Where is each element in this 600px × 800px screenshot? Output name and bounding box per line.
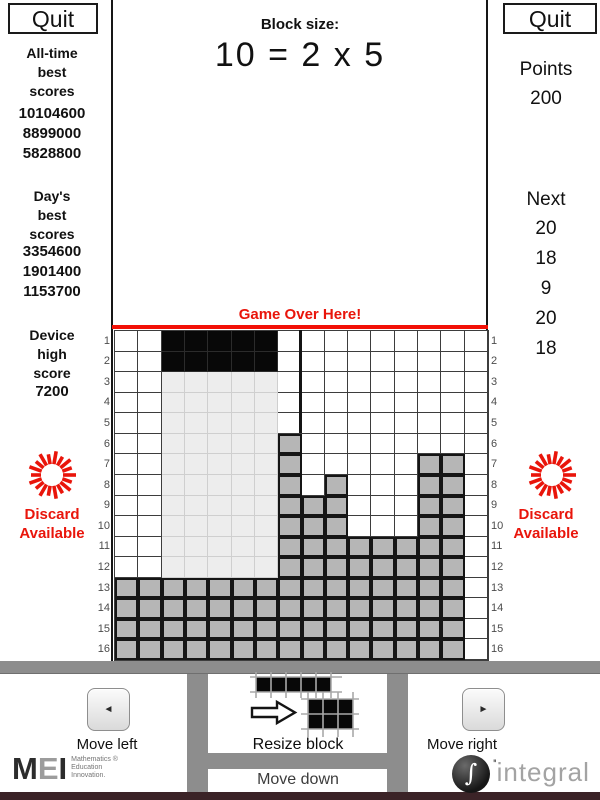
available-word: Available	[0, 524, 104, 543]
grid-cell	[185, 352, 208, 373]
grid-cell	[325, 475, 348, 496]
control-divider-right	[387, 674, 408, 793]
grid-cell	[302, 434, 325, 455]
grid-cell	[441, 372, 464, 393]
all-time-score-3: 5828800	[0, 144, 104, 164]
grid-cell	[232, 413, 255, 434]
all-time-score-2: 8899000	[0, 124, 104, 144]
grid-cell	[348, 372, 371, 393]
grid-cell	[348, 434, 371, 455]
grid-cell	[395, 496, 418, 517]
grid-cell	[465, 516, 488, 537]
day-score-1: 3354600	[0, 242, 104, 262]
grid-cell	[278, 598, 301, 619]
grid-cell	[162, 516, 185, 537]
grid-cell	[302, 475, 325, 496]
row-number-left: 13	[88, 581, 110, 595]
left-triangle-icon: ◄	[104, 704, 114, 715]
grid-cell	[325, 619, 348, 640]
grid-cell	[302, 537, 325, 558]
day-line1: Day's	[0, 187, 104, 206]
grid-cell	[278, 372, 301, 393]
grid-cell	[232, 475, 255, 496]
grid-cell	[138, 352, 161, 373]
next-label: Next	[492, 185, 600, 214]
grid-cell	[162, 578, 185, 599]
resize-block-label[interactable]: Resize block	[208, 736, 388, 754]
grid-cell	[348, 331, 371, 352]
grid-cell	[395, 516, 418, 537]
grid-cell	[465, 537, 488, 558]
integral-sphere-icon: ∫	[452, 755, 490, 793]
grid-cell	[325, 598, 348, 619]
grid-cell	[325, 372, 348, 393]
grid-cell	[348, 598, 371, 619]
grid-cell	[441, 434, 464, 455]
grid-cell	[348, 516, 371, 537]
grid-cell	[255, 496, 278, 517]
row-number-right: 6	[491, 437, 515, 451]
factris-game-screen: Quit All-time best scores 10104600 88990…	[0, 0, 600, 800]
grid-cell	[465, 639, 488, 660]
grid-cell	[232, 619, 255, 640]
grid-cell	[302, 413, 325, 434]
grid-cell	[302, 578, 325, 599]
grid-cell	[278, 434, 301, 455]
device-line2: high	[0, 345, 104, 364]
grid-cell	[278, 496, 301, 517]
starburst-icon[interactable]	[524, 447, 580, 503]
grid-cell	[162, 352, 185, 373]
grid-cell	[138, 475, 161, 496]
grid-cell	[302, 331, 325, 352]
day-best-header: Day's best scores	[0, 187, 104, 244]
grid-cell	[208, 331, 231, 352]
grid-cell	[302, 454, 325, 475]
row-number-left: 15	[88, 622, 110, 636]
grid-cell	[115, 537, 138, 558]
grid-cell	[138, 454, 161, 475]
grid-cell	[185, 516, 208, 537]
grid-cell	[138, 516, 161, 537]
grid-cell	[418, 496, 441, 517]
quit-button-right[interactable]: Quit	[503, 3, 597, 34]
grid-cell	[255, 454, 278, 475]
grid-cell	[232, 578, 255, 599]
row-number-left: 5	[88, 416, 110, 430]
grid-cell	[232, 372, 255, 393]
grid-cell	[162, 331, 185, 352]
grid-cell	[418, 454, 441, 475]
grid-cell	[162, 475, 185, 496]
grid-cell	[371, 639, 394, 660]
grid-cell	[255, 578, 278, 599]
grid-cell	[441, 639, 464, 660]
grid-cell	[371, 393, 394, 414]
grid-cell	[138, 557, 161, 578]
grid-cell	[371, 557, 394, 578]
grid-cell	[395, 475, 418, 496]
grid-cell	[232, 598, 255, 619]
grid-cell	[441, 413, 464, 434]
next-value-5: 18	[492, 334, 600, 363]
grid-cell	[395, 578, 418, 599]
right-triangle-icon: ►	[479, 704, 489, 715]
grid-cell	[371, 496, 394, 517]
discard-word: Discard	[0, 505, 104, 524]
mei-tagline-1: Mathematics ®	[71, 756, 118, 764]
integral-prefix: ''	[493, 757, 496, 771]
grid-cell	[348, 639, 371, 660]
row-number-left: 7	[88, 457, 110, 471]
grid-cell	[162, 619, 185, 640]
row-number-right: 12	[491, 560, 515, 574]
game-over-label: Game Over Here!	[113, 306, 487, 323]
grid-cell	[185, 619, 208, 640]
grid-cell	[302, 352, 325, 373]
grid-cell	[185, 454, 208, 475]
grid-cell	[325, 496, 348, 517]
row-number-right: 5	[491, 416, 515, 430]
grid-cell	[325, 393, 348, 414]
grid-cell	[208, 537, 231, 558]
grid-cell	[138, 413, 161, 434]
grid-cell	[208, 516, 231, 537]
mei-letter-e: E	[38, 751, 59, 786]
grid-cell	[302, 372, 325, 393]
grid-cell	[441, 352, 464, 373]
grid-cell	[395, 372, 418, 393]
next-value-3: 9	[492, 274, 600, 303]
grid-cell	[278, 639, 301, 660]
grid-cell	[371, 619, 394, 640]
grid-cell	[441, 393, 464, 414]
grid-cell	[185, 393, 208, 414]
grid-cell	[138, 331, 161, 352]
grid-cell	[465, 454, 488, 475]
mei-letter-m: M	[12, 751, 38, 786]
grid-cell	[278, 475, 301, 496]
game-over-line	[112, 325, 488, 329]
mei-logo: MEI Mathematics ® Education Innovation.	[12, 753, 118, 784]
grid-cell	[115, 454, 138, 475]
grid-cell	[465, 413, 488, 434]
grid-cell	[441, 598, 464, 619]
row-number-right: 4	[491, 395, 515, 409]
grid-cell	[418, 619, 441, 640]
grid-cell	[395, 537, 418, 558]
grid-cell	[465, 598, 488, 619]
day-line2: best	[0, 206, 104, 225]
grid-cell	[348, 619, 371, 640]
grid-cell	[138, 393, 161, 414]
grid-cell	[441, 578, 464, 599]
grid-cell	[325, 578, 348, 599]
quit-button-left[interactable]: Quit	[8, 3, 98, 34]
grid-cell	[232, 393, 255, 414]
grid-cell	[371, 475, 394, 496]
grid-cell	[441, 557, 464, 578]
grid-cell	[371, 331, 394, 352]
row-number-right: 7	[491, 457, 515, 471]
grid-cell	[418, 434, 441, 455]
grid-cell	[185, 578, 208, 599]
grid-cell	[325, 557, 348, 578]
grid-cell	[395, 639, 418, 660]
grid-cell	[162, 434, 185, 455]
grid-cell	[162, 537, 185, 558]
grid-cell	[115, 578, 138, 599]
resize-result-block-icon[interactable]	[301, 692, 359, 738]
all-time-line1: All-time	[0, 44, 104, 63]
next-value-4: 20	[492, 304, 600, 333]
all-time-best-header: All-time best scores	[0, 44, 104, 101]
grid-cell	[325, 454, 348, 475]
device-line1: Device	[0, 326, 104, 345]
grid-cell	[208, 393, 231, 414]
grid-cell	[302, 557, 325, 578]
grid-cell	[441, 496, 464, 517]
grid-cell	[465, 372, 488, 393]
grid-cell	[302, 598, 325, 619]
grid-cell	[278, 331, 301, 352]
grid-cell	[441, 454, 464, 475]
grid-cell	[325, 639, 348, 660]
grid-cell	[208, 639, 231, 660]
grid-cell	[465, 393, 488, 414]
all-time-line3: scores	[0, 82, 104, 101]
row-number-right: 16	[491, 642, 515, 656]
grid-cell	[395, 598, 418, 619]
row-number-left: 16	[88, 642, 110, 656]
grid-cell	[138, 434, 161, 455]
all-time-scores: 10104600 8899000 5828800	[0, 104, 104, 164]
grid-cell	[325, 537, 348, 558]
grid-cell	[255, 393, 278, 414]
day-score-3: 1153700	[0, 282, 104, 302]
grid-cell	[348, 352, 371, 373]
grid-cell	[208, 352, 231, 373]
grid-cell	[255, 413, 278, 434]
mei-tagline: Mathematics ® Education Innovation.	[71, 756, 118, 780]
next-value-2: 18	[492, 244, 600, 273]
grid-cell	[302, 393, 325, 414]
all-time-line2: best	[0, 63, 104, 82]
grid-cell	[162, 413, 185, 434]
grid-cell	[115, 557, 138, 578]
grid-cell	[325, 516, 348, 537]
grid-cell	[278, 557, 301, 578]
grid-cell	[302, 619, 325, 640]
grid-cell	[255, 516, 278, 537]
day-score-2: 1901400	[0, 262, 104, 282]
row-number-left: 14	[88, 601, 110, 615]
grid-cell	[395, 352, 418, 373]
grid-cell	[325, 352, 348, 373]
grid-cell	[115, 393, 138, 414]
grid-cell	[371, 413, 394, 434]
grid-cell	[441, 619, 464, 640]
grid-cell	[115, 434, 138, 455]
drop-guide-line	[299, 330, 302, 433]
grid-cell	[418, 639, 441, 660]
grid-cell	[208, 619, 231, 640]
grid-cell	[395, 393, 418, 414]
grid-cell	[232, 639, 255, 660]
device-high-score-header: Device high score	[0, 326, 104, 383]
move-left-button[interactable]: ◄	[87, 688, 130, 731]
grid-cell	[185, 496, 208, 517]
grid-cell	[185, 434, 208, 455]
grid-cell	[138, 639, 161, 660]
control-divider-middle	[187, 753, 408, 769]
grid-cell	[115, 475, 138, 496]
integral-logo: ∫ '' integral	[452, 755, 590, 793]
grid-cell	[465, 578, 488, 599]
block-resize-arrow-icon[interactable]	[249, 699, 299, 726]
move-right-label: Move right	[402, 736, 522, 753]
grid-cell	[371, 434, 394, 455]
row-number-left: 8	[88, 478, 110, 492]
move-right-button[interactable]: ►	[462, 688, 505, 731]
grid-cell	[208, 578, 231, 599]
grid-cell	[418, 557, 441, 578]
grid-cell	[232, 537, 255, 558]
grid-cell	[418, 372, 441, 393]
grid-cell	[278, 619, 301, 640]
grid-cell	[418, 413, 441, 434]
grid-cell	[348, 537, 371, 558]
grid-cell	[418, 598, 441, 619]
grid-cell	[208, 598, 231, 619]
grid-cell	[418, 475, 441, 496]
grid-cell	[115, 496, 138, 517]
grid-cell	[465, 331, 488, 352]
grid-cell	[255, 475, 278, 496]
grid-cell	[232, 331, 255, 352]
grid-cell	[302, 639, 325, 660]
grid-cell	[138, 598, 161, 619]
grid-cell	[278, 352, 301, 373]
grid-cell	[371, 598, 394, 619]
grid-cell	[255, 537, 278, 558]
center-panel-left-border	[111, 0, 113, 662]
grid-cell	[232, 454, 255, 475]
discard-available-right[interactable]: Discard Available	[492, 505, 600, 543]
day-scores: 3354600 1901400 1153700	[0, 242, 104, 302]
grid-cell	[208, 454, 231, 475]
grid-cell	[185, 639, 208, 660]
grid-cell	[348, 475, 371, 496]
grid-cell	[465, 352, 488, 373]
discard-available-left[interactable]: Discard Available	[0, 505, 104, 543]
grid-cell	[371, 454, 394, 475]
grid-cell	[232, 434, 255, 455]
grid-cell	[325, 434, 348, 455]
grid-cell	[325, 331, 348, 352]
grid-cell	[255, 434, 278, 455]
grid-cell	[185, 598, 208, 619]
grid-cell	[278, 413, 301, 434]
row-number-right: 14	[491, 601, 515, 615]
grid-cell	[185, 372, 208, 393]
grid-cell	[465, 557, 488, 578]
grid-cell	[115, 619, 138, 640]
grid-cell	[418, 331, 441, 352]
grid-cell	[255, 639, 278, 660]
grid-cell	[208, 434, 231, 455]
grid-cell	[278, 537, 301, 558]
grid-cell	[255, 557, 278, 578]
grid-cell	[115, 372, 138, 393]
control-divider-left	[187, 674, 208, 793]
mei-letters: MEI	[12, 753, 67, 784]
points-label: Points	[492, 55, 600, 84]
grid-cell	[162, 454, 185, 475]
grid-cell	[115, 516, 138, 537]
grid-cell	[465, 475, 488, 496]
grid-cell	[115, 413, 138, 434]
grid-cell	[208, 557, 231, 578]
grid-cell	[138, 537, 161, 558]
grid-cell	[162, 496, 185, 517]
discard-word: Discard	[492, 505, 600, 524]
grid-cell	[348, 393, 371, 414]
grid-cell	[115, 639, 138, 660]
row-number-right: 3	[491, 375, 515, 389]
mei-tagline-3: Innovation.	[71, 772, 118, 780]
grid-cell	[162, 557, 185, 578]
grid-cell	[162, 598, 185, 619]
grid-cell	[371, 372, 394, 393]
move-down-label[interactable]: Move down	[208, 771, 388, 789]
grid-cell	[302, 516, 325, 537]
grid-cell	[278, 578, 301, 599]
mei-tagline-2: Education	[71, 764, 118, 772]
grid-cell	[138, 619, 161, 640]
grid-cell	[185, 331, 208, 352]
grid-cell	[255, 352, 278, 373]
grid-cell	[395, 413, 418, 434]
grid-cell	[138, 496, 161, 517]
all-time-score-1: 10104600	[0, 104, 104, 124]
grid-cell	[418, 352, 441, 373]
grid-cell	[185, 475, 208, 496]
grid-cell	[465, 619, 488, 640]
grid-cell	[208, 496, 231, 517]
starburst-icon[interactable]	[24, 447, 80, 503]
row-number-left: 6	[88, 437, 110, 451]
grid-cell	[162, 393, 185, 414]
points-value: 200	[492, 84, 600, 113]
grid-cell	[325, 413, 348, 434]
grid-cell	[115, 331, 138, 352]
grid-cell	[232, 352, 255, 373]
grid-cell	[371, 537, 394, 558]
grid-cell	[302, 496, 325, 517]
device-line3: score	[0, 364, 104, 383]
grid-cell	[115, 352, 138, 373]
grid-cell	[162, 372, 185, 393]
grid-cell	[395, 434, 418, 455]
grid-cell	[138, 578, 161, 599]
grid-cell	[278, 393, 301, 414]
grid-cell	[441, 331, 464, 352]
grid-cell	[208, 413, 231, 434]
grid-cell	[348, 578, 371, 599]
grid-cell	[418, 578, 441, 599]
bottom-edge-strip	[0, 792, 600, 800]
